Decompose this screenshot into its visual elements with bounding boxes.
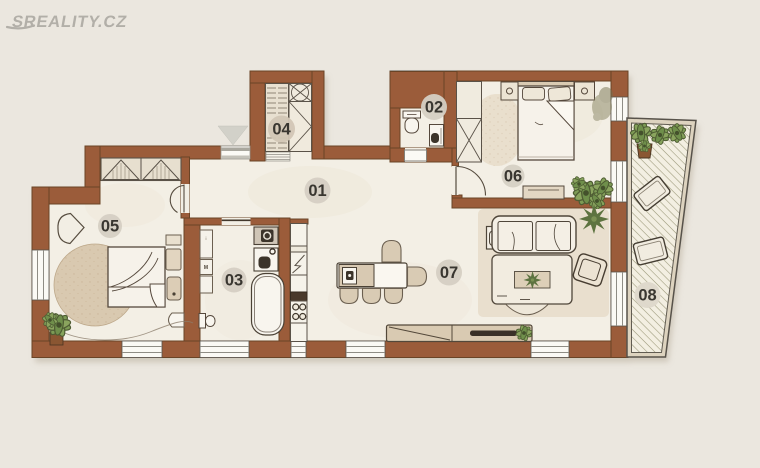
svg-text:07: 07 [440,264,458,282]
svg-text:06: 06 [504,168,522,186]
svg-text:04: 04 [272,121,291,139]
svg-text:05: 05 [101,218,119,236]
svg-text:08: 08 [638,287,656,305]
svg-text:M: M [204,265,208,271]
svg-text:01: 01 [308,182,326,200]
svg-text:03: 03 [225,272,243,290]
svg-text:02: 02 [425,99,443,117]
svg-text:i: i [206,236,207,241]
